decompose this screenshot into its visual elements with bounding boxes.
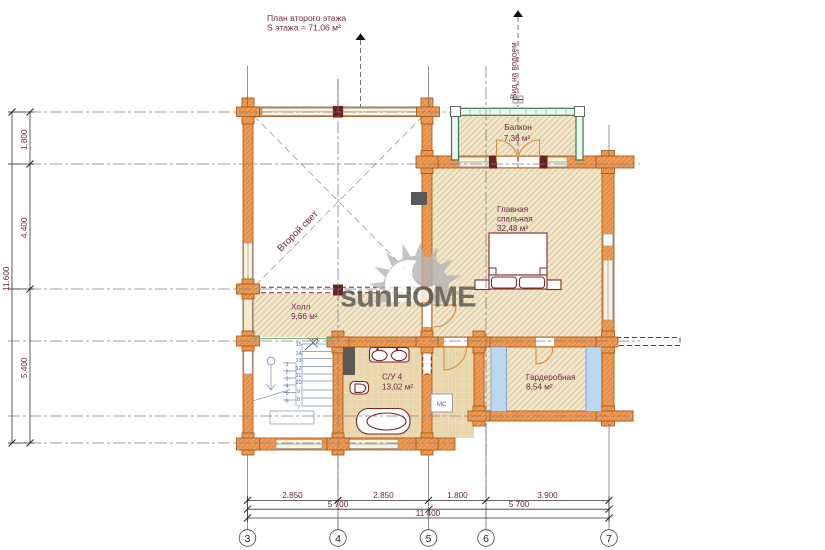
svg-text:8: 8 — [297, 397, 300, 403]
svg-text:11 400: 11 400 — [416, 509, 441, 518]
svg-text:5: 5 — [285, 391, 288, 397]
svg-text:5.400: 5.400 — [20, 357, 29, 378]
svg-text:4: 4 — [285, 384, 288, 390]
svg-text:5 700: 5 700 — [328, 500, 349, 509]
svg-text:3.900: 3.900 — [537, 491, 558, 500]
svg-text:11.600: 11.600 — [2, 266, 11, 291]
svg-text:6: 6 — [285, 399, 288, 405]
svg-text:1: 1 — [285, 362, 288, 368]
svg-text:sunHOME: sunHOME — [340, 280, 476, 314]
svg-text:1.800: 1.800 — [20, 129, 29, 150]
svg-text:Главная: Главная — [497, 205, 528, 214]
svg-text:Гардеробная: Гардеробная — [526, 373, 576, 382]
svg-text:5 700: 5 700 — [509, 500, 530, 509]
svg-text:10: 10 — [295, 380, 301, 386]
svg-text:2.850: 2.850 — [282, 491, 303, 500]
svg-text:2.850: 2.850 — [373, 491, 394, 500]
svg-text:Балкон: Балкон — [504, 123, 531, 132]
svg-text:7,36 м²: 7,36 м² — [504, 134, 531, 143]
svg-text:4: 4 — [335, 533, 341, 545]
svg-text:2: 2 — [285, 370, 288, 376]
svg-text:13: 13 — [295, 358, 301, 364]
svg-text:9,66 м²: 9,66 м² — [291, 312, 318, 321]
svg-text:12: 12 — [295, 366, 301, 372]
svg-text:7: 7 — [606, 533, 612, 545]
svg-text:S этажа = 71,06 м²: S этажа = 71,06 м² — [267, 23, 341, 33]
svg-text:13,02 м²: 13,02 м² — [382, 383, 413, 392]
svg-text:9: 9 — [297, 389, 300, 395]
svg-text:32,48 м²: 32,48 м² — [497, 224, 528, 233]
svg-text:3: 3 — [285, 377, 288, 383]
svg-text:7: 7 — [297, 405, 300, 411]
svg-text:15: 15 — [295, 342, 301, 348]
svg-text:С/У 4: С/У 4 — [382, 373, 403, 382]
svg-text:Вид на водоем: Вид на водоем — [510, 42, 519, 99]
svg-text:МС: МС — [437, 402, 447, 408]
svg-text:1.800: 1.800 — [447, 491, 468, 500]
svg-text:8,54 м²: 8,54 м² — [526, 383, 553, 392]
svg-text:План второго этажа: План второго этажа — [267, 13, 346, 23]
svg-text:спальная: спальная — [497, 215, 533, 224]
svg-text:5: 5 — [426, 533, 432, 545]
svg-text:11: 11 — [296, 373, 302, 379]
svg-text:3: 3 — [245, 533, 251, 545]
svg-text:Холл: Холл — [291, 303, 311, 312]
svg-text:14: 14 — [295, 351, 301, 357]
svg-text:4.400: 4.400 — [20, 217, 29, 238]
svg-text:6: 6 — [483, 533, 489, 545]
